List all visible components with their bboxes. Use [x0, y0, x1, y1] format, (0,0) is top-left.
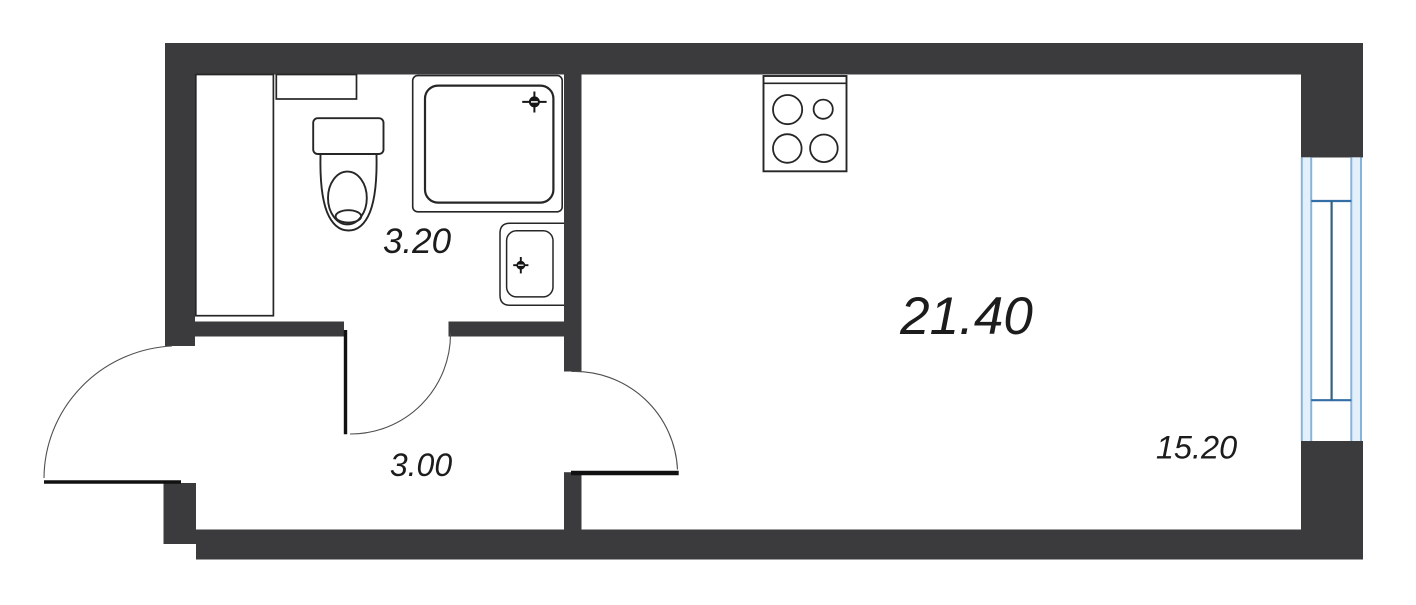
- svg-text:21.40: 21.40: [899, 287, 1033, 346]
- svg-text:15.20: 15.20: [1156, 430, 1237, 466]
- svg-text:3.20: 3.20: [383, 222, 452, 261]
- svg-text:3.00: 3.00: [390, 447, 452, 483]
